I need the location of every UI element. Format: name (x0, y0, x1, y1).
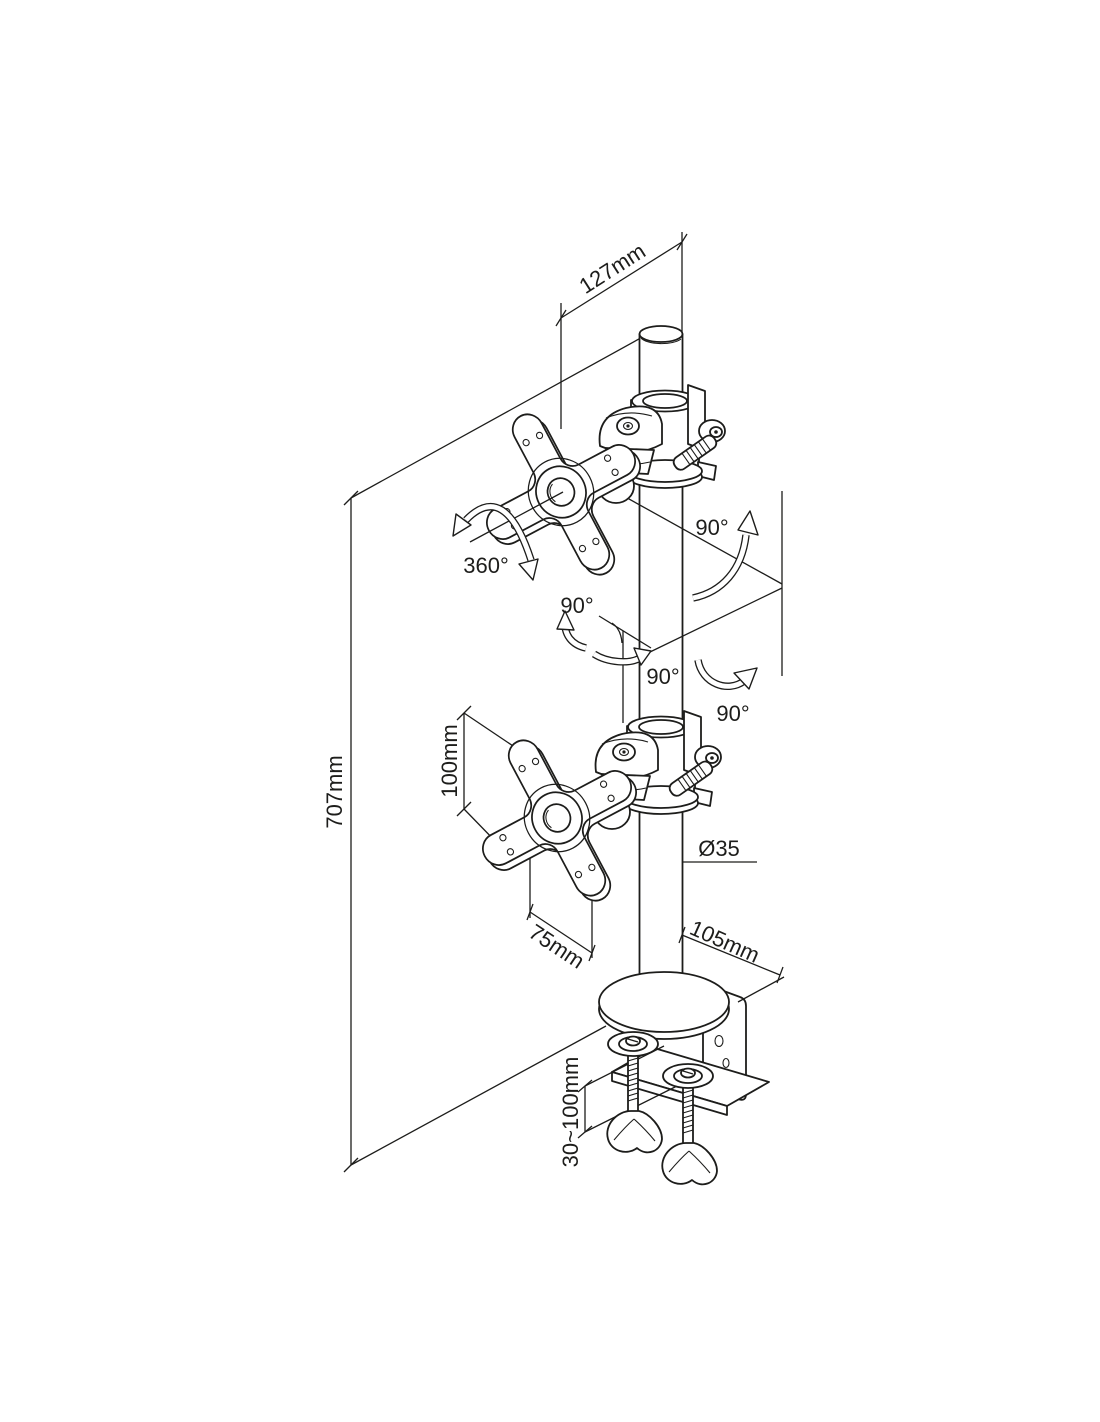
drawing-canvas: 707mm 127mm 100mm 75mm (0, 0, 1100, 1422)
vesa-height-label: 100mm (437, 724, 462, 797)
swivel-top-label: 90° (695, 515, 728, 540)
pole-cap (640, 326, 683, 342)
swivel-arrow-bottom (698, 660, 757, 689)
arm-length-label: 127mm (575, 238, 650, 299)
total-height-label: 707mm (322, 755, 347, 828)
pole-diameter-label: Ø35 (698, 836, 740, 861)
pan-mid-label: 90° (646, 664, 679, 689)
tilt-mid-label: 90° (560, 593, 593, 618)
clamp-screw-rear (662, 1064, 717, 1184)
clamp-depth-label: 105mm (686, 915, 763, 968)
clamp-range-label: 30~100mm (558, 1057, 583, 1168)
dimension-pole-diameter: Ø35 (683, 836, 757, 862)
rotation-label: 360° (463, 553, 509, 578)
swivel-bottom-label: 90° (716, 701, 749, 726)
technical-drawing: 707mm 127mm 100mm 75mm (0, 0, 1100, 1422)
vesa-width-label: 75mm (524, 919, 589, 974)
dimension-100mm: 100mm (437, 706, 522, 845)
